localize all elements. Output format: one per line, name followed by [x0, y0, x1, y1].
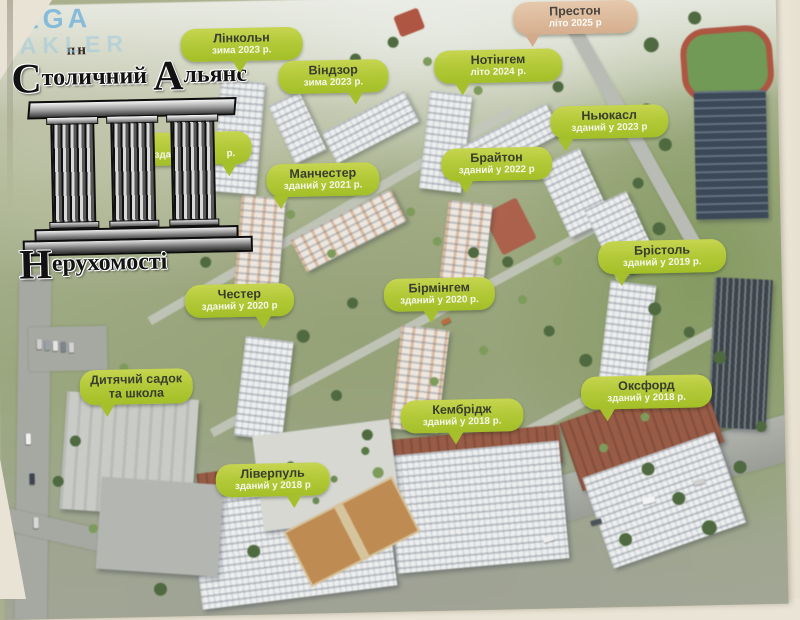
label-nyukasl: Ньюкаслзданий у 2023 р	[550, 104, 669, 140]
column-middle	[110, 115, 156, 228]
logo-title: Столичний Альянс	[11, 59, 262, 98]
label-notingem: Нотінгемліто 2024 р.	[434, 48, 563, 84]
label-brayton: Брайтонзданий у 2022 р	[441, 146, 553, 182]
label-title: Дитячий садок	[85, 371, 186, 387]
label-date: зима 2023 р.	[284, 76, 382, 90]
label-title-line2: та школа	[86, 385, 187, 401]
label-tail	[256, 316, 272, 329]
label-sadok-shkola: Дитячий садокта школа	[79, 368, 193, 405]
logo-dropcap-n: Н	[19, 242, 53, 289]
label-tail	[423, 310, 439, 323]
label-tail	[600, 408, 616, 421]
label-birmingem: Бірмінгемзданий у 2020 р.	[384, 277, 496, 313]
label-date: зданий у 2022 р	[447, 164, 546, 178]
label-date: зданий у 2023 р	[556, 121, 662, 135]
wall-crease-shadow	[7, 0, 13, 210]
label-liverpul: Ліверпульзданий у 2018 р	[215, 462, 330, 498]
label-date: зданий у 2018 р	[222, 479, 324, 493]
label-manchester: Манчестерзданий у 2021 р.	[266, 162, 380, 198]
label-preston: Престонліто 2025 р	[513, 0, 638, 35]
label-date: зданий у 2020 р	[191, 300, 288, 314]
label-date: зданий у 2019 р.	[604, 256, 720, 271]
label-date: літо 2024 р.	[440, 65, 556, 80]
label-chester: Честерзданий у 2020 р	[185, 283, 295, 319]
agency-logo: пн Столичний Альянс Нерухомості	[4, 33, 265, 300]
label-tail	[558, 138, 574, 151]
label-date: зданий у 2018 р.	[587, 391, 706, 406]
label-tail	[286, 495, 302, 508]
label-kembridzh: Кембріджзданий у 2018 р.	[400, 398, 524, 434]
label-date: зданий у 2018 р.	[406, 415, 517, 430]
label-tail	[614, 273, 630, 286]
label-tail	[231, 60, 247, 73]
label-tail	[524, 34, 540, 47]
label-tail	[348, 92, 364, 105]
label-linkoln: Лінкольнзима 2023 р.	[180, 27, 303, 63]
label-date: зданий у 2021 р.	[272, 179, 373, 193]
logo-subtitle-word: ерухомості	[52, 249, 168, 277]
label-tail	[448, 432, 464, 445]
logo-dropcap-a: А	[153, 53, 184, 100]
poster-photo: Лоздани р.Лінкольнзима 2023 р.Віндзорзим…	[0, 0, 788, 620]
label-oksford: Оксфордзданий у 2018 р.	[581, 374, 713, 410]
label-date: літо 2025 р	[519, 17, 631, 32]
column-left	[50, 116, 96, 229]
label-vindzor: Віндзорзима 2023 р.	[278, 59, 389, 95]
photo-of-masterplan-poster: { "watermark": { "line1": "MEGA", "line2…	[0, 0, 800, 599]
logo-title-word1: толичний	[41, 63, 147, 91]
label-tail	[455, 82, 471, 95]
label-bristol: Брістользданий у 2019 р.	[598, 239, 727, 275]
label-tail	[458, 180, 474, 193]
label-tail	[99, 404, 115, 417]
label-date: зима 2023 р.	[187, 44, 297, 59]
logo-subtitle: Нерухомості	[19, 245, 260, 284]
column-right	[170, 114, 216, 227]
columns-graphic	[6, 97, 265, 252]
label-tail	[272, 196, 288, 209]
label-date: зданий у 2020 р.	[390, 294, 489, 308]
logo-dropcap-s: С	[11, 56, 42, 103]
